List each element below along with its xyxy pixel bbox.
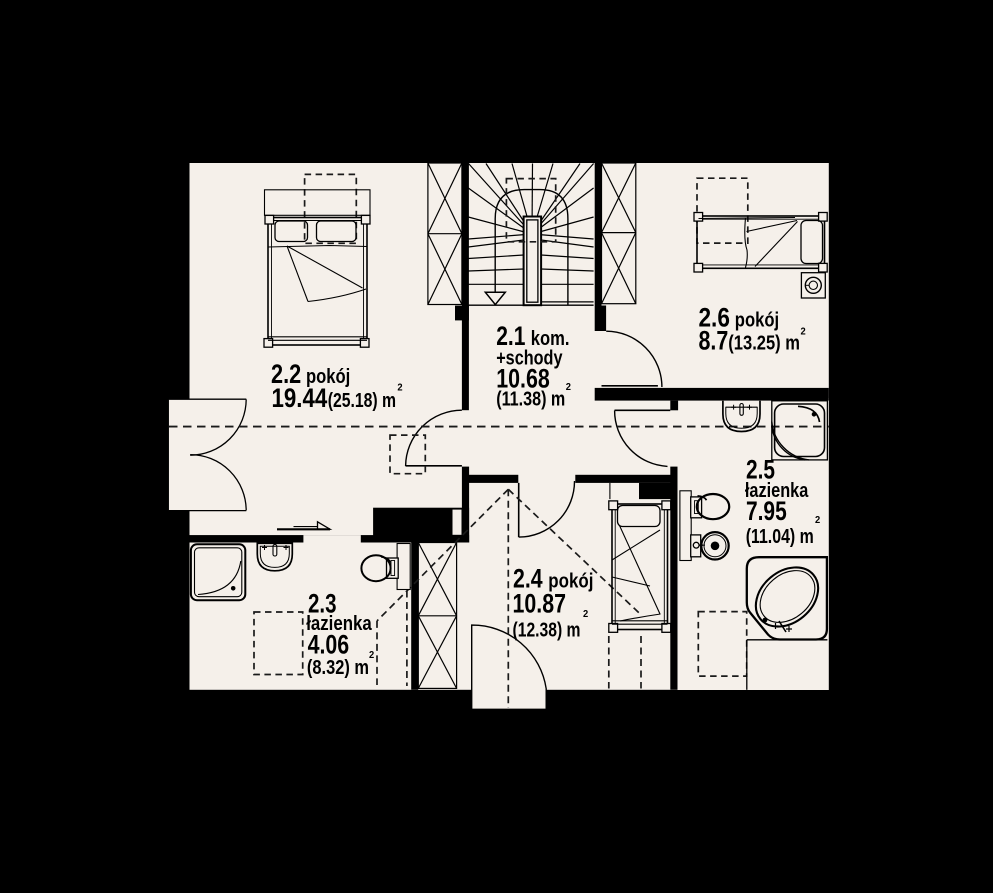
svg-text:(11.04) m: (11.04) m bbox=[746, 526, 814, 548]
svg-text:2: 2 bbox=[801, 325, 806, 337]
svg-text:2: 2 bbox=[369, 649, 374, 661]
svg-text:(11.38) m: (11.38) m bbox=[496, 389, 565, 411]
svg-text:2: 2 bbox=[397, 381, 402, 393]
svg-text:4.06: 4.06 bbox=[308, 630, 350, 660]
svg-text:2.1: 2.1 bbox=[496, 321, 525, 351]
svg-text:19.44: 19.44 bbox=[272, 383, 328, 413]
svg-text:(13.25) m: (13.25) m bbox=[728, 333, 800, 355]
svg-text:10.87: 10.87 bbox=[513, 589, 567, 619]
svg-text:7.95: 7.95 bbox=[746, 496, 787, 526]
svg-text:(25.18) m: (25.18) m bbox=[328, 390, 396, 412]
svg-text:2: 2 bbox=[583, 608, 588, 620]
svg-text:(12.38) m: (12.38) m bbox=[513, 620, 581, 642]
svg-text:(8.32) m: (8.32) m bbox=[307, 657, 369, 679]
svg-text:8.7: 8.7 bbox=[699, 326, 729, 356]
svg-text:2: 2 bbox=[815, 514, 820, 526]
svg-text:pokój: pokój bbox=[735, 309, 779, 331]
svg-text:2: 2 bbox=[566, 381, 571, 393]
